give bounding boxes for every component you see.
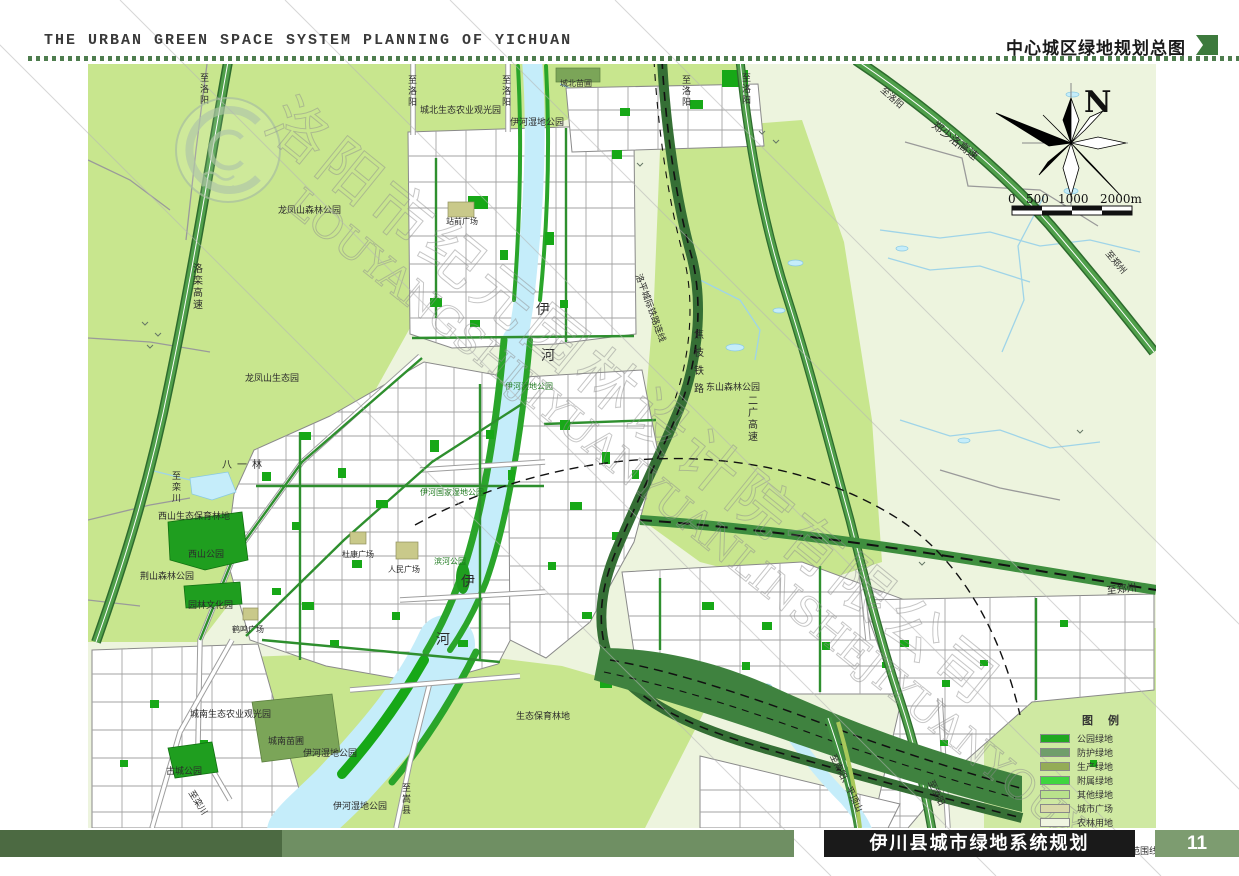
map-label: 生态保育林地: [516, 710, 570, 721]
map-label: 伊河湿地公园: [303, 747, 357, 758]
legend-swatch: [1040, 804, 1070, 813]
map-label: 河: [436, 631, 450, 647]
legend-swatch: [1040, 818, 1070, 827]
legend-item-label: 防护绿地: [1077, 746, 1113, 759]
legend-item: 农林用地: [1040, 817, 1162, 827]
footer-title: 伊川县城市绿地系统规划: [824, 830, 1135, 857]
compass-north-label: N: [1084, 85, 1111, 120]
legend-item: 公园绿地: [1040, 733, 1162, 743]
header-dotted-rule: [28, 56, 1239, 61]
page-number: 11: [1155, 830, 1239, 857]
map-label: 荆山森林公园: [140, 570, 194, 581]
legend-item-label: 农林用地: [1077, 816, 1113, 829]
legend-item: 城市广场: [1040, 803, 1162, 813]
legend-swatch: [1040, 776, 1070, 785]
scale-tick-label: 0: [1008, 192, 1016, 206]
map-label: 古城公园: [166, 765, 202, 776]
map-label: 至洛阳: [408, 75, 417, 107]
legend-title: 图 例: [1082, 712, 1162, 728]
map-label: 人民广场: [388, 564, 420, 574]
legend-item-label: 城市广场: [1077, 802, 1113, 815]
legend-item: 附属绿地: [1040, 775, 1162, 785]
map-label: 鹤鸣广场: [232, 624, 264, 634]
legend-swatch: [1040, 790, 1070, 799]
map-label: 二广高速: [748, 396, 758, 443]
legend-item: 其他绿地: [1040, 789, 1162, 799]
legend-swatch: [1040, 762, 1070, 771]
map-label: 伊河国家湿地公园: [420, 487, 484, 497]
legend-swatch: [1040, 748, 1070, 757]
map-label: 城南苗圃: [268, 735, 304, 746]
page: 至洛阳至洛阳至洛阳至洛阳至洛阳至洛阳城北苗圃城北生态农业观光园伊河湿地公园郑少洛…: [0, 0, 1239, 876]
scale-tick-label: 2000m: [1100, 192, 1143, 206]
map-label: 园林文化园: [188, 599, 233, 610]
map-label: 伊河湿地公园: [510, 116, 564, 127]
scale-tick-label: 1000: [1058, 192, 1089, 206]
map-label: 八一林: [222, 458, 267, 471]
map-label: 滨河公园: [434, 556, 466, 566]
map-label: 城北生态农业观光园: [420, 104, 501, 115]
scale-bar: 050010002000m: [1008, 192, 1143, 215]
map-label: 至洛阳: [200, 73, 209, 105]
legend-item: 生产绿地: [1040, 761, 1162, 771]
map-label: 至嵩县: [402, 783, 411, 815]
map-label: 龙凤山生态园: [245, 372, 299, 383]
map-label: 至洛阳: [502, 75, 511, 107]
map-label: 至栾川: [172, 471, 181, 503]
map-label: 城南生态农业观光园: [190, 708, 271, 719]
map-label: 城北苗圃: [560, 79, 592, 88]
legend-item-label: 公园绿地: [1077, 732, 1113, 745]
map-label: 西山生态保育林地: [158, 510, 230, 521]
map-label: 伊: [461, 573, 475, 589]
map-label: 至洛阳: [742, 73, 751, 105]
legend-item-label: 其他绿地: [1077, 788, 1113, 801]
map-label: 东山森林公园: [706, 381, 760, 392]
legend-swatch: [1040, 734, 1070, 743]
company-logo-watermark: [176, 98, 280, 202]
map-label: 西山公园: [188, 549, 224, 559]
legend-item-label: 生产绿地: [1077, 760, 1113, 773]
map-label: 至洛阳: [682, 75, 691, 107]
map-label: 杜康广场: [342, 549, 374, 559]
legend-item-label: 附属绿地: [1077, 774, 1113, 787]
legend-item: 防护绿地: [1040, 747, 1162, 757]
footer-bar-light: [282, 830, 794, 857]
map-label: 伊河湿地公园: [333, 800, 387, 811]
page-title-en: THE URBAN GREEN SPACE SYSTEM PLANNING OF…: [44, 32, 572, 49]
scale-tick-label: 500: [1026, 192, 1049, 206]
map-label: 洛栾高速: [193, 262, 203, 311]
footer-bar-dark: [0, 830, 282, 857]
